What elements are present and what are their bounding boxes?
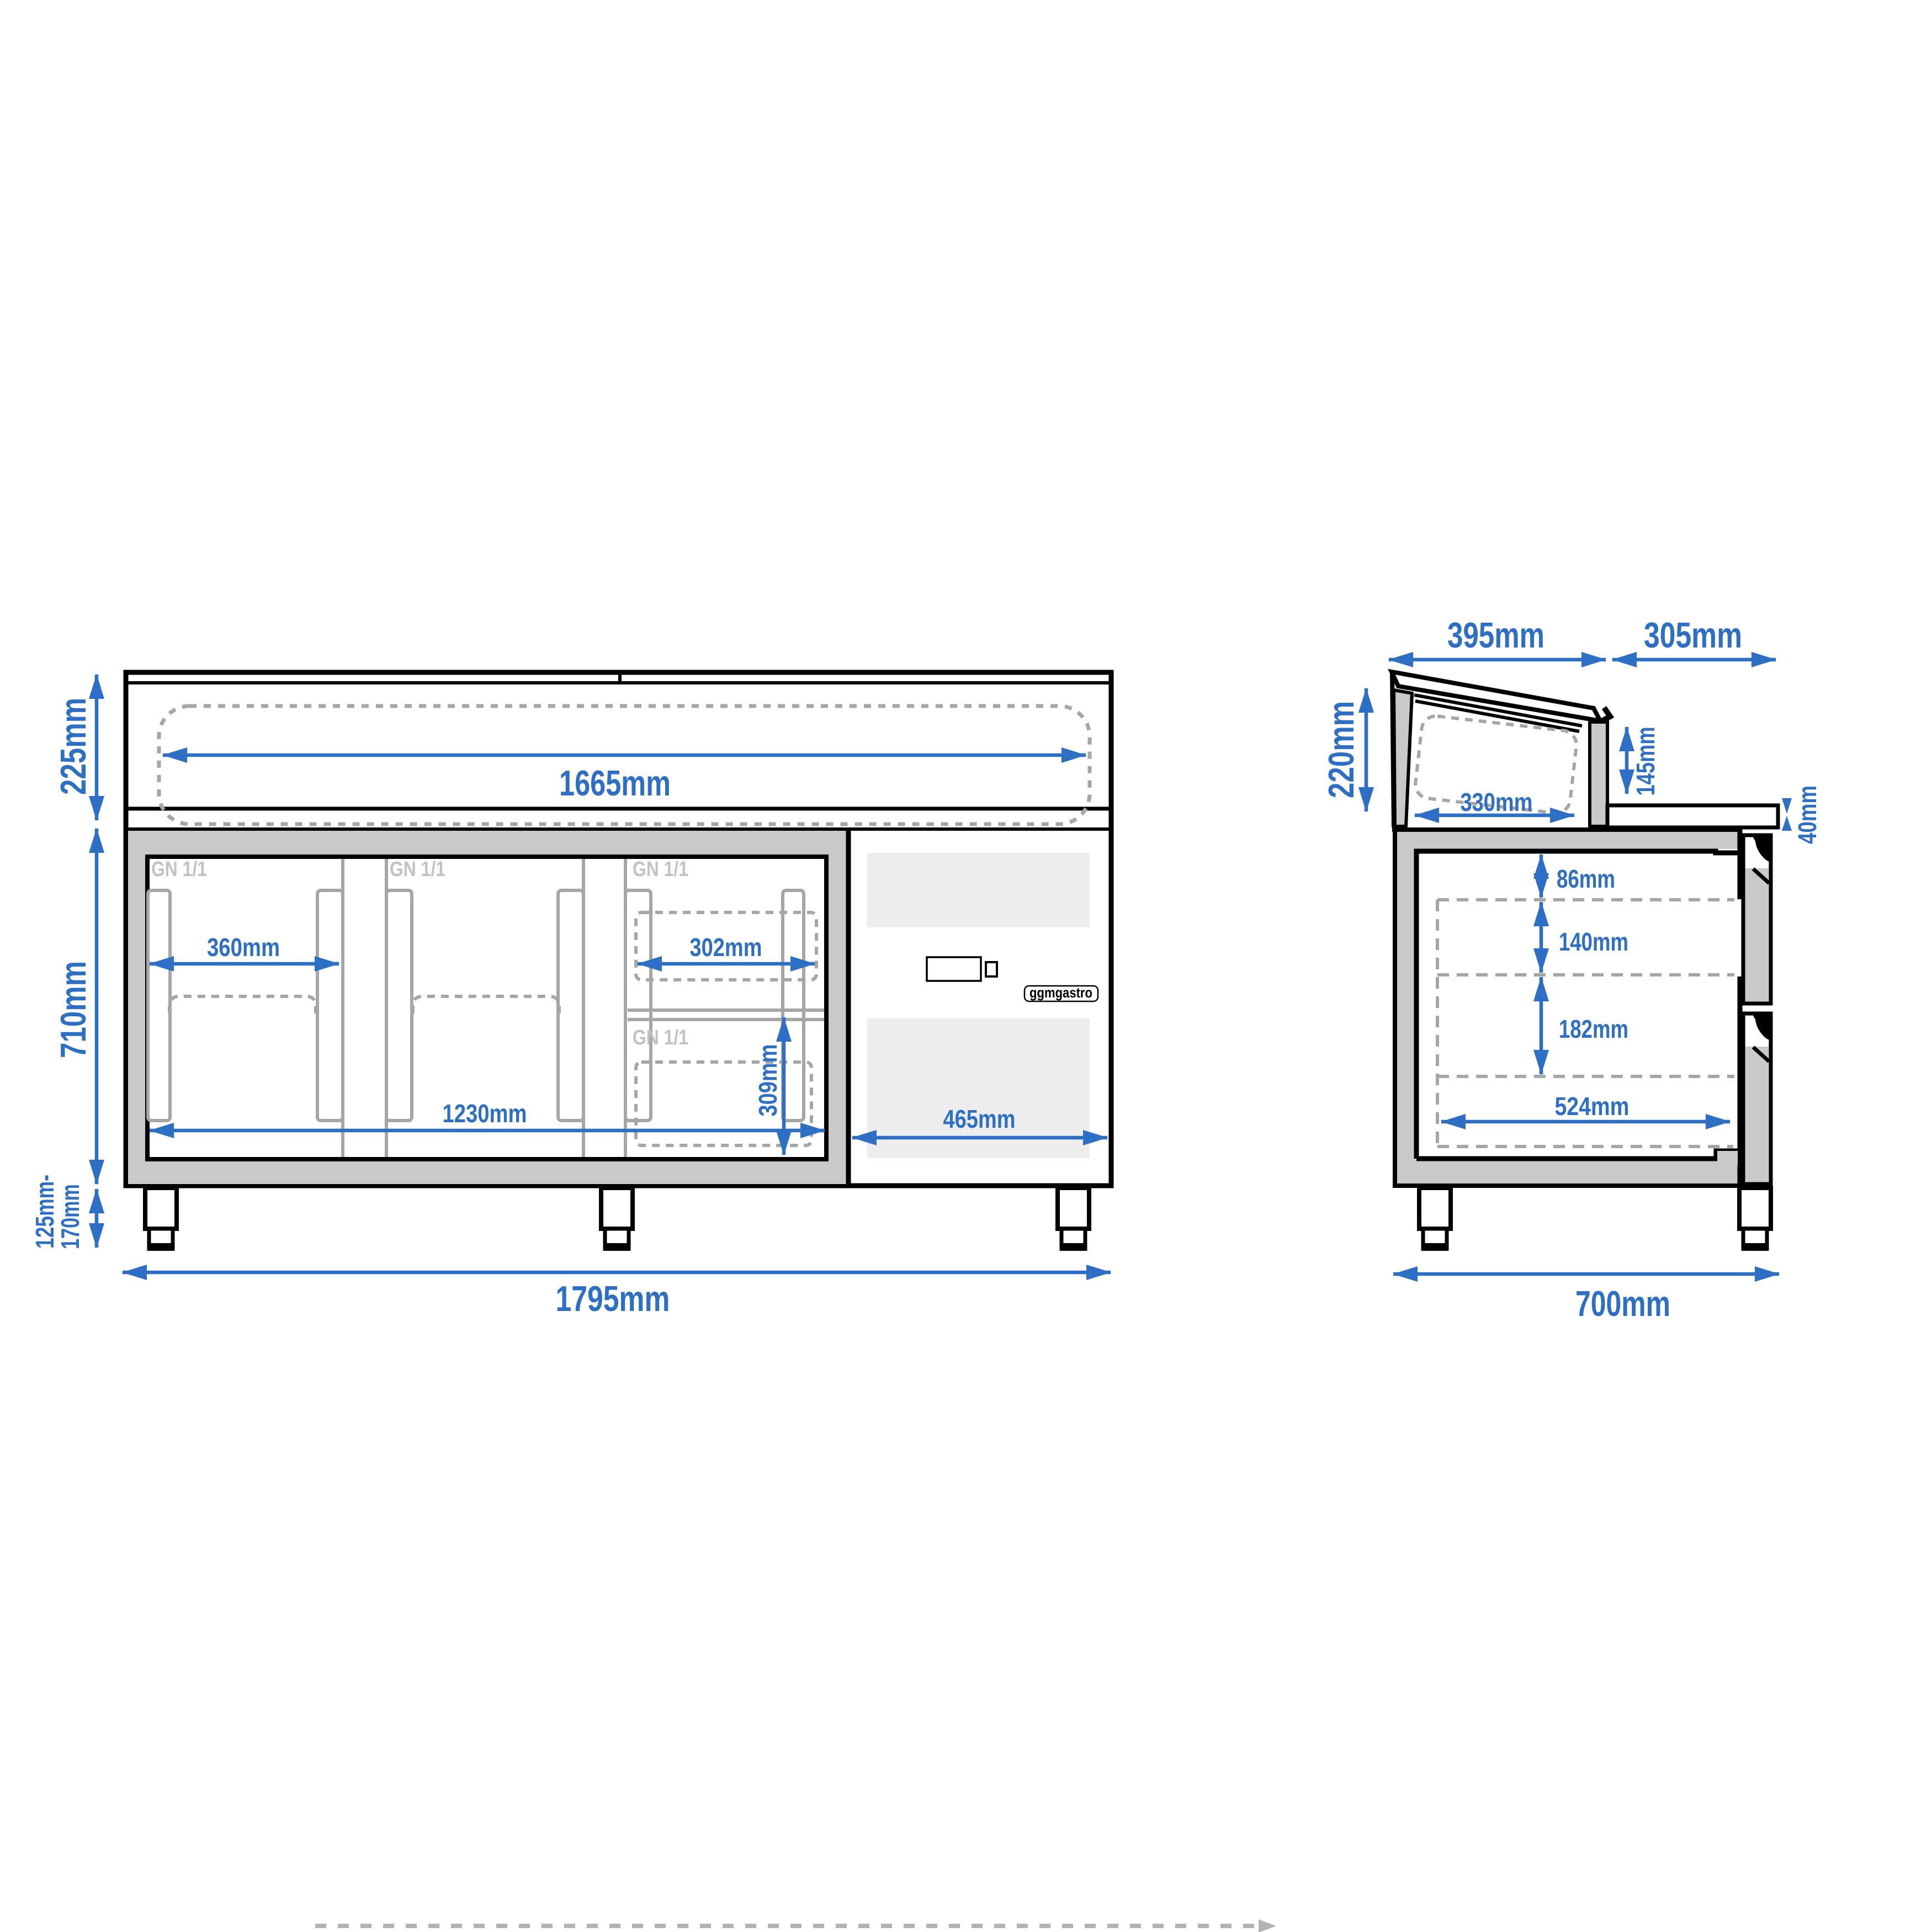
svg-text:220mm: 220mm	[1321, 701, 1361, 798]
svg-text:1665mm: 1665mm	[559, 763, 671, 803]
svg-text:GN 1/1: GN 1/1	[151, 858, 207, 881]
svg-text:GN 1/1: GN 1/1	[633, 1026, 688, 1049]
svg-text:40mm: 40mm	[1793, 785, 1822, 844]
svg-text:360mm: 360mm	[207, 933, 280, 962]
svg-text:140mm: 140mm	[1559, 927, 1628, 956]
svg-text:225mm: 225mm	[53, 698, 93, 795]
svg-text:524mm: 524mm	[1555, 1092, 1630, 1121]
svg-text:ggmgastro: ggmgastro	[1029, 984, 1092, 1001]
svg-text:86mm: 86mm	[1557, 864, 1615, 893]
svg-text:465mm: 465mm	[943, 1105, 1016, 1133]
svg-text:700mm: 700mm	[1575, 1283, 1670, 1324]
svg-text:GN 1/1: GN 1/1	[390, 858, 445, 881]
svg-text:1230mm: 1230mm	[443, 1099, 527, 1128]
svg-text:395mm: 395mm	[1447, 615, 1544, 655]
svg-text:1795mm: 1795mm	[556, 1278, 670, 1319]
svg-text:125mm-: 125mm-	[30, 1175, 59, 1249]
svg-text:710mm: 710mm	[53, 961, 93, 1058]
svg-text:GN 1/1: GN 1/1	[633, 858, 688, 881]
svg-text:182mm: 182mm	[1559, 1015, 1628, 1043]
svg-text:305mm: 305mm	[1644, 615, 1742, 655]
svg-text:145mm: 145mm	[1631, 727, 1660, 796]
svg-text:309mm: 309mm	[753, 1044, 782, 1117]
svg-text:170mm: 170mm	[56, 1184, 84, 1249]
svg-text:330mm: 330mm	[1461, 788, 1533, 816]
svg-text:302mm: 302mm	[690, 933, 762, 962]
